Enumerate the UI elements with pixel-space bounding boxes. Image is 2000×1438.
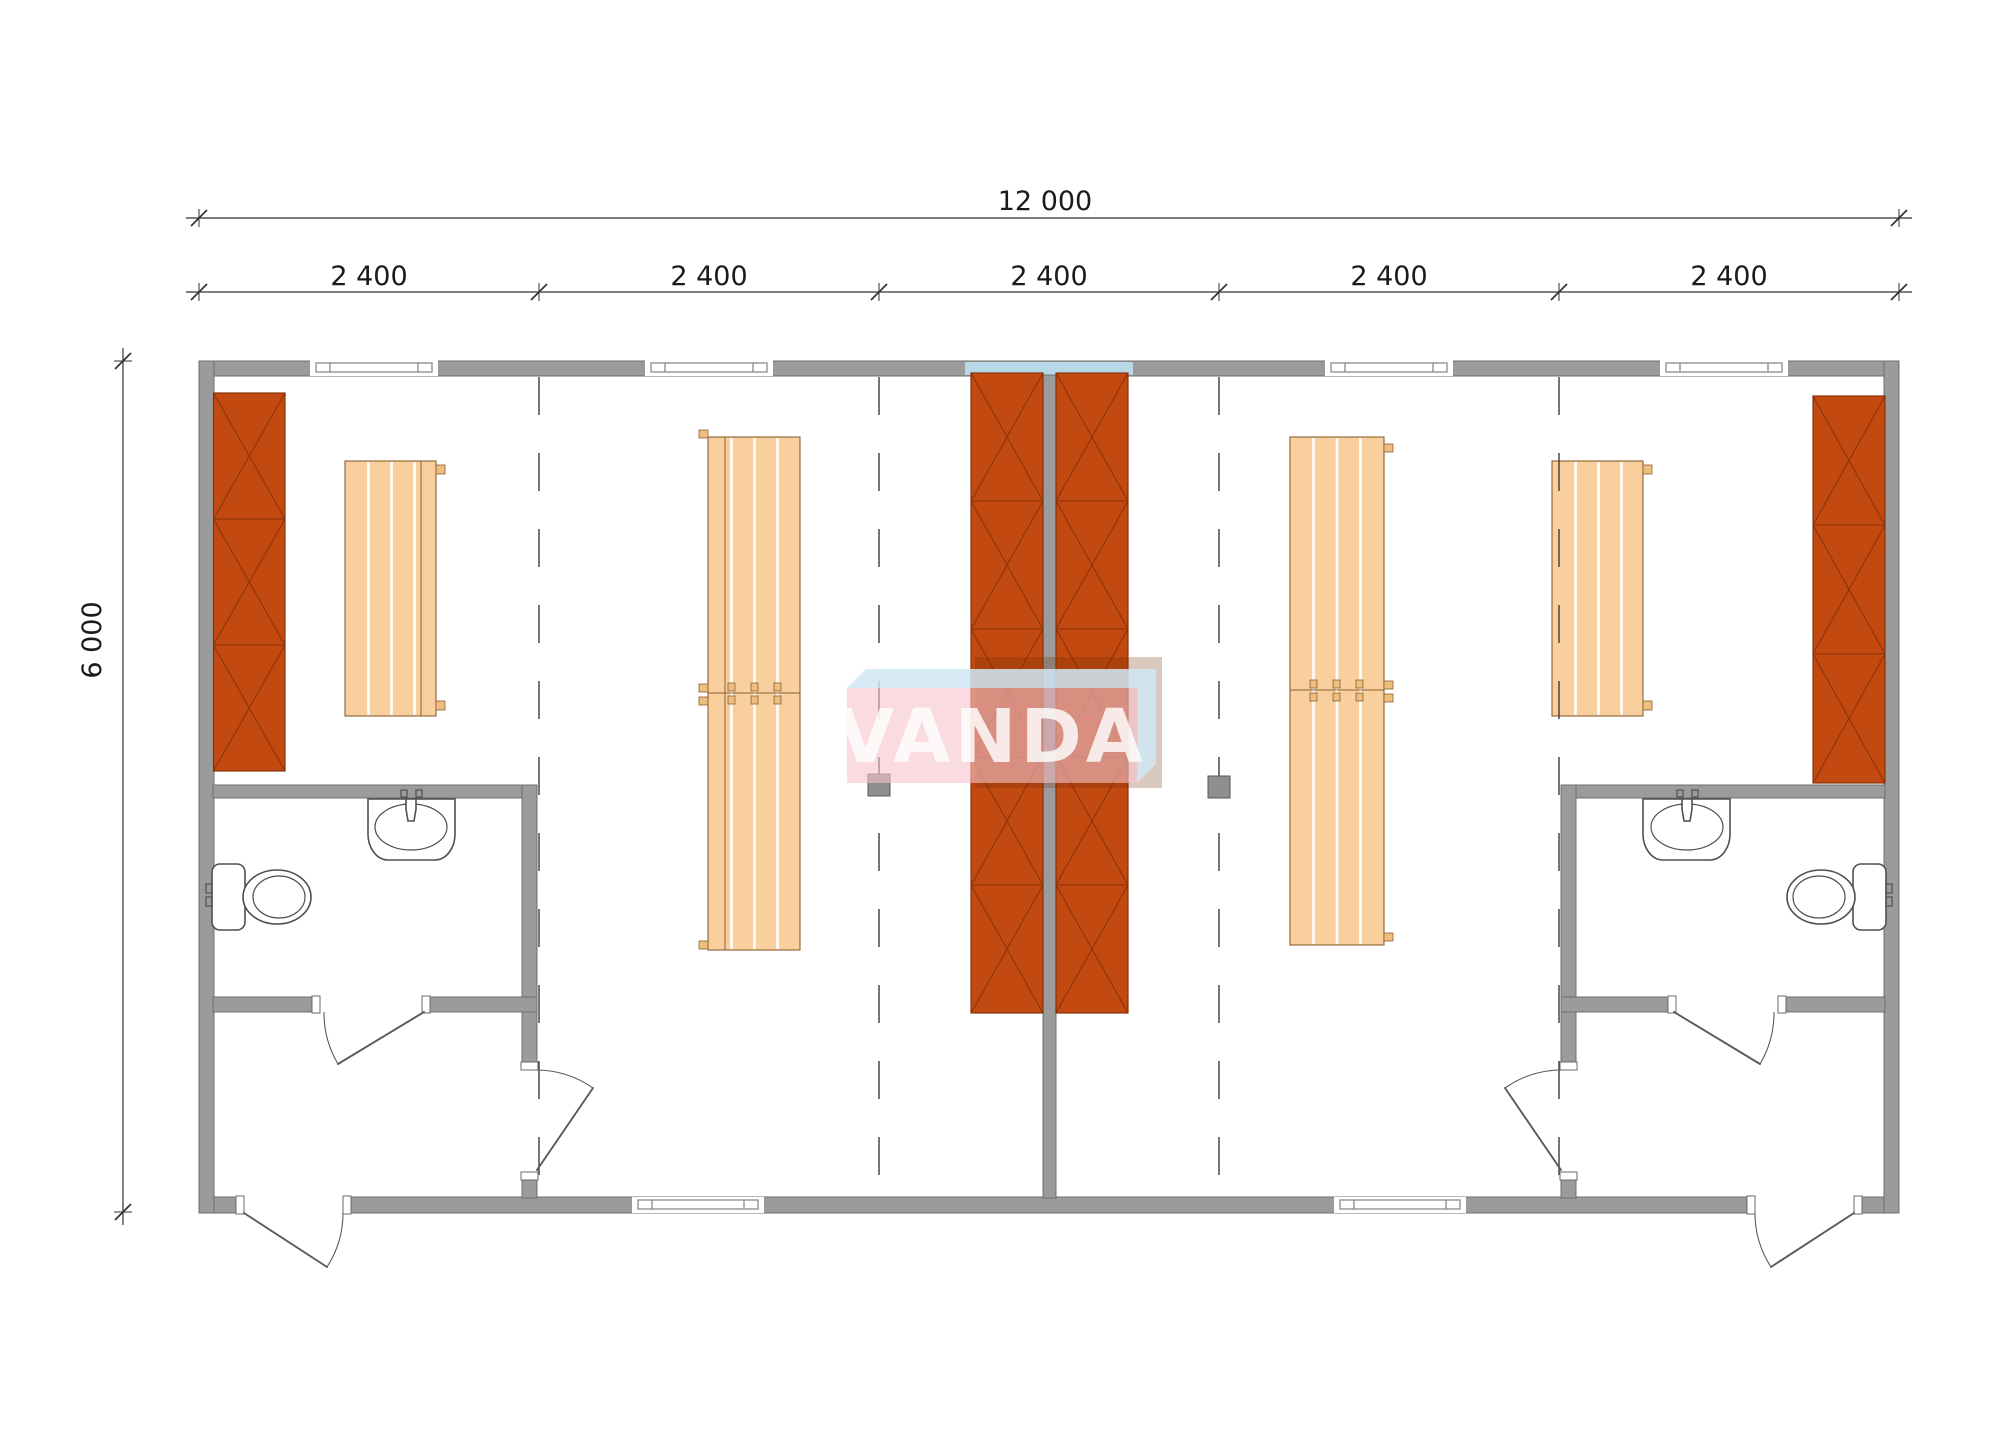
room-door-right [1505,1070,1561,1170]
sink-right [1643,790,1730,860]
vanda-watermark: VANDA [837,657,1162,788]
dimension-height: 6 000 [77,348,132,1225]
toilet-left [206,864,311,930]
floor-plan-drawing: VANDA [0,0,2000,1438]
floor-drain-right [1208,776,1230,798]
faucet-left [406,799,416,821]
faucet-right [1682,799,1692,821]
window-top-2 [645,360,773,376]
dimension-total-width: 12 000 [186,186,1912,227]
wall-bottom [199,1197,1899,1213]
watermark-text: VANDA [837,694,1147,780]
bench-room1-short [345,461,445,716]
bathroom-left-fixtures [206,790,455,930]
window-top-4 [1660,360,1788,376]
dimension-label-bay-1: 2 400 [330,261,407,292]
bench-room1-long [699,430,800,950]
entrance-opening-left [244,1196,343,1214]
entrance-opening-right [1755,1196,1854,1214]
wall-right [1884,361,1899,1213]
window-top-3 [1325,360,1453,376]
entrance-door-left [244,1213,343,1267]
toilet-right [1787,864,1892,930]
dimension-bays: 2 400 2 400 2 400 2 400 2 400 [186,261,1912,301]
dimension-label-bay-5: 2 400 [1690,261,1767,292]
bathroom-right-fixtures [1643,790,1892,930]
floor-plan-page: VANDA [0,0,2000,1438]
wardrobe-left [214,393,286,771]
window-top-1 [310,360,438,376]
window-bottom-2 [1334,1197,1466,1213]
bathroom-right-top-wall [1561,785,1885,798]
bathroom-left-top-wall [213,785,537,798]
bathroom-door-left [324,1012,424,1064]
dimension-label-bay-2: 2 400 [670,261,747,292]
room-door-left [537,1070,593,1170]
window-bottom-1 [632,1197,764,1213]
wall-left [199,361,214,1213]
sink-left [368,790,455,860]
bench-room2-short [1552,461,1652,716]
watermark-box-top [847,669,1156,688]
bathroom-door-right [1674,1012,1774,1064]
entrance-door-right [1755,1213,1854,1267]
wardrobe-right [1813,396,1885,783]
dimension-label-bay-4: 2 400 [1350,261,1427,292]
bench-room2-long [1290,437,1393,945]
dimension-label-height: 6 000 [77,601,108,678]
dimension-label-bay-3: 2 400 [1010,261,1087,292]
dimension-label-total: 12 000 [998,186,1092,217]
